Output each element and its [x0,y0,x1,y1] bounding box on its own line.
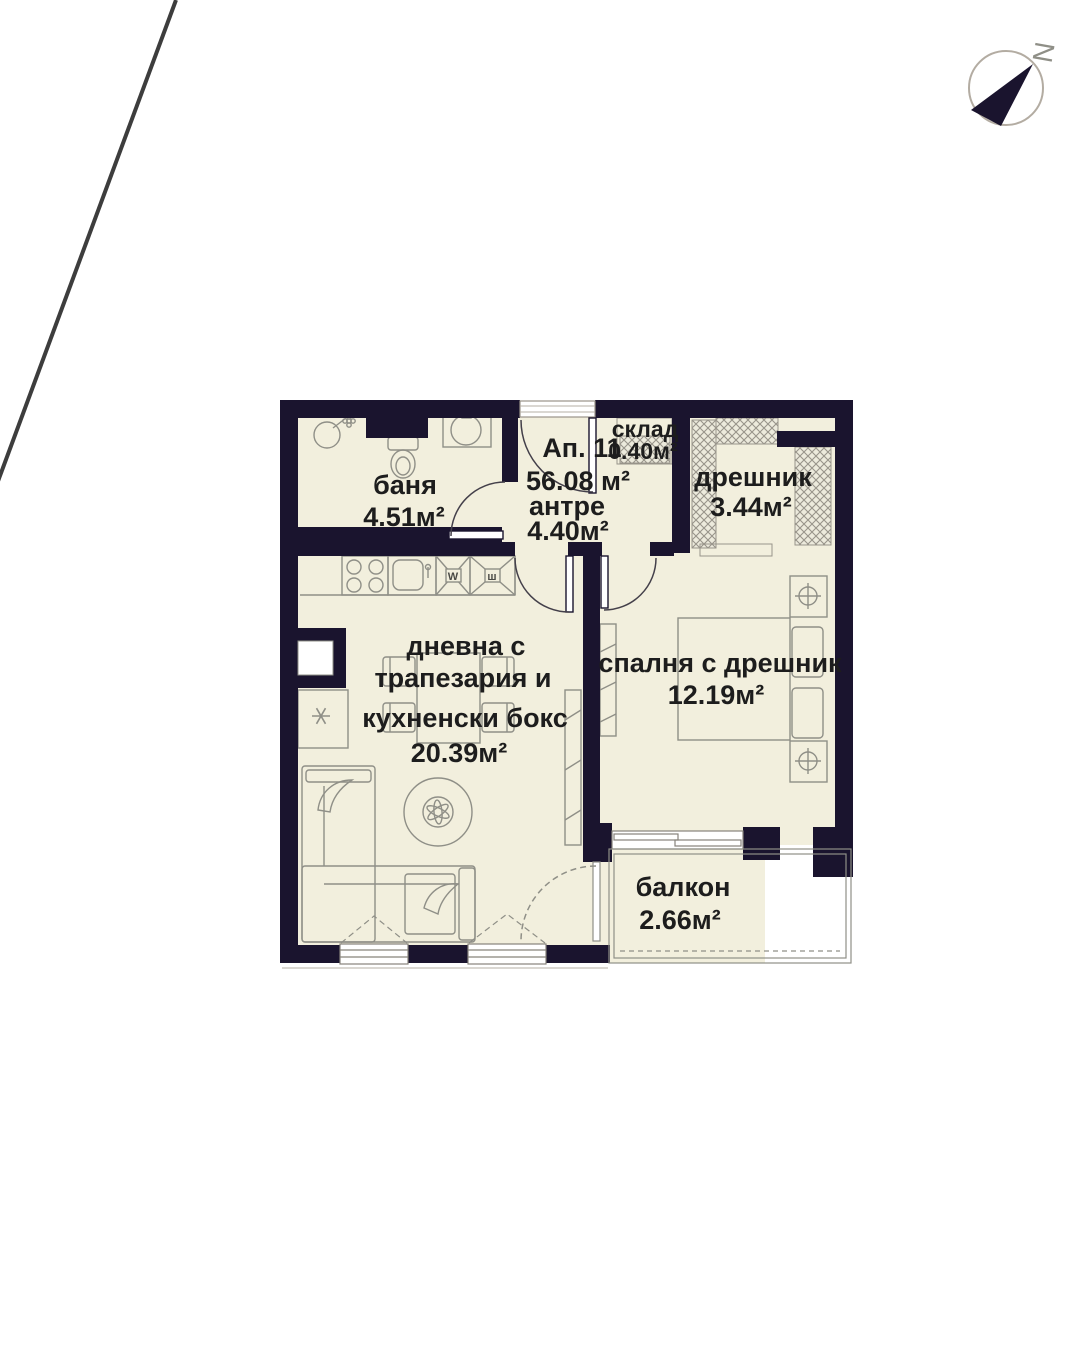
balcony-sliding-window [612,831,743,849]
room-label-dreshnik: дрешник [694,462,812,492]
site-boundary-line [0,0,176,492]
room-area-antre: 4.40м² [527,516,609,546]
floor-plan-page: N [0,0,1085,1358]
room-area-balcony: 2.66м² [639,905,721,935]
room-area-bedroom: 12.19м² [668,680,765,710]
room-area-dreshnik: 3.44м² [710,492,792,522]
room-label-bedroom: спалня с дрешник [598,648,842,678]
room-area-living: 20.39м² [411,738,508,768]
appliance-unit-label: ш [487,571,496,583]
shaft-niche-wall [298,675,345,688]
north-compass: N [969,40,1060,126]
entrance-threshold [520,401,595,417]
room-label-living-1: дневна с [407,631,526,661]
window [468,944,546,964]
room-area-sklad: 0.40м² [608,438,678,464]
shaft-niche [298,641,333,675]
compass-needle-icon [971,64,1033,126]
room-label-balcony: балкон [636,872,731,902]
balcony-floor [600,845,765,963]
room-area-banya: 4.51м² [363,502,445,532]
room-label-living-3: кухненски бокс [362,703,567,733]
room-label-living-2: трапезария и [374,663,551,693]
floor-plan-drawing: N [0,0,1085,1358]
washing-machine-label: W [448,571,459,583]
room-label-banya: баня [373,470,437,500]
window [340,944,408,964]
